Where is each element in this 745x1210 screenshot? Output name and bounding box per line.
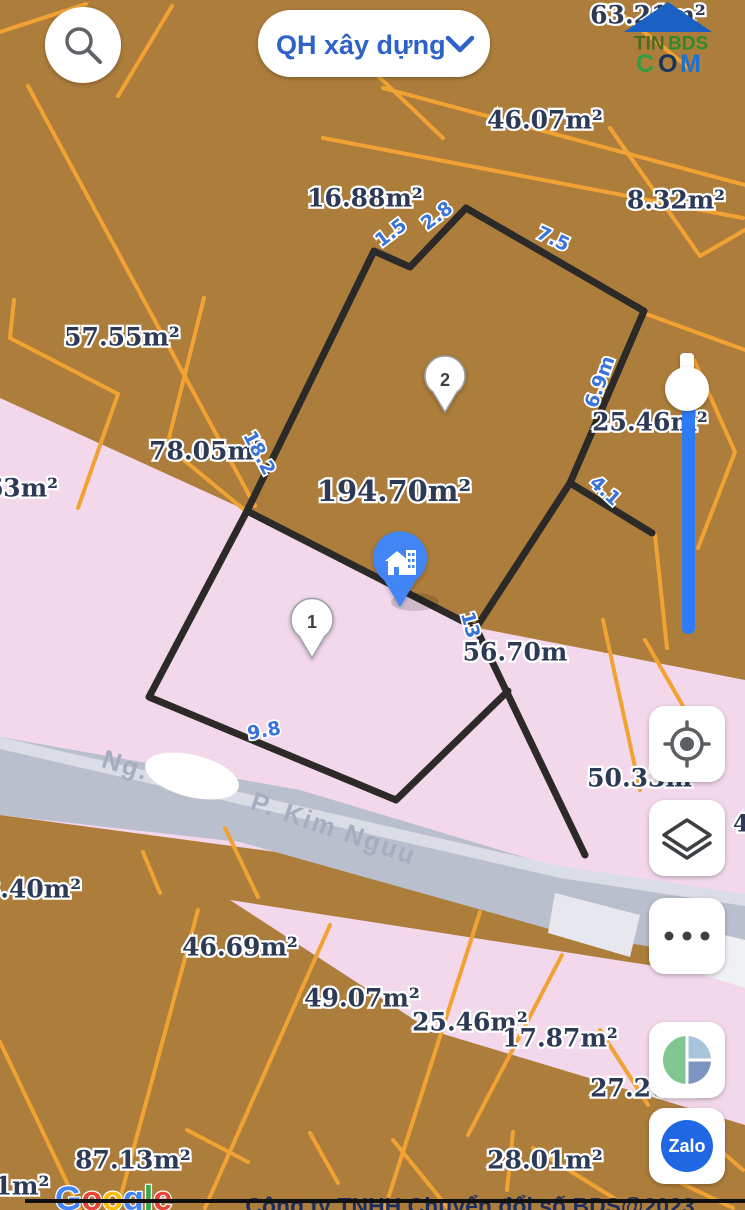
area-label: 63m² [0,474,58,503]
area-label: 8.40m² [0,875,81,904]
map-type-button[interactable] [649,1022,725,1098]
layer-selector-button[interactable]: QH xây dựng [258,10,490,77]
search-button[interactable] [45,7,121,83]
area-label: 1m² [0,1172,49,1201]
layer-selector-label: QH xây dựng [276,30,446,60]
area-label: 8.32m² [627,186,725,215]
area-label: 57.55m² [64,323,180,352]
layers-button[interactable] [649,800,725,876]
area-label: 49.07m² [304,984,420,1013]
area-label: 4 [733,811,745,838]
area-label: 16.88m² [307,184,423,213]
logo-o: O [658,50,677,78]
area-label: 17.87m² [502,1024,618,1053]
google-logo: Google [55,1180,172,1210]
zalo-button[interactable]: Zalo [649,1108,725,1184]
area-label: 56.70m [463,638,568,667]
scrollbar-track[interactable] [682,400,695,634]
area-label: 87.13m² [75,1146,191,1175]
scrollbar-knob[interactable] [665,367,709,411]
area-label: 194.70m² [317,474,471,508]
logo-c: C [636,50,654,78]
zalo-label: Zalo [668,1136,705,1156]
ellipsis-icon [665,932,710,941]
map-controls: Zalo [649,706,725,1184]
locate-button[interactable] [649,706,725,782]
marker-pin-1-number: 1 [307,612,317,632]
area-label: 28.01m² [487,1146,603,1175]
map-app-screen: 63.21m² 46.07m² 16.88m² 8.32m² 57.55m² 7… [0,0,745,1210]
marker-pin-2-number: 2 [440,370,450,390]
area-label: 46.69m² [182,933,298,962]
area-label: 46.07m² [487,106,603,135]
logo-m: M [680,50,701,78]
footer-divider [25,1199,745,1203]
more-options-button[interactable] [649,898,725,974]
map-view: 63.21m² 46.07m² 16.88m² 8.32m² 57.55m² 7… [0,0,745,1210]
